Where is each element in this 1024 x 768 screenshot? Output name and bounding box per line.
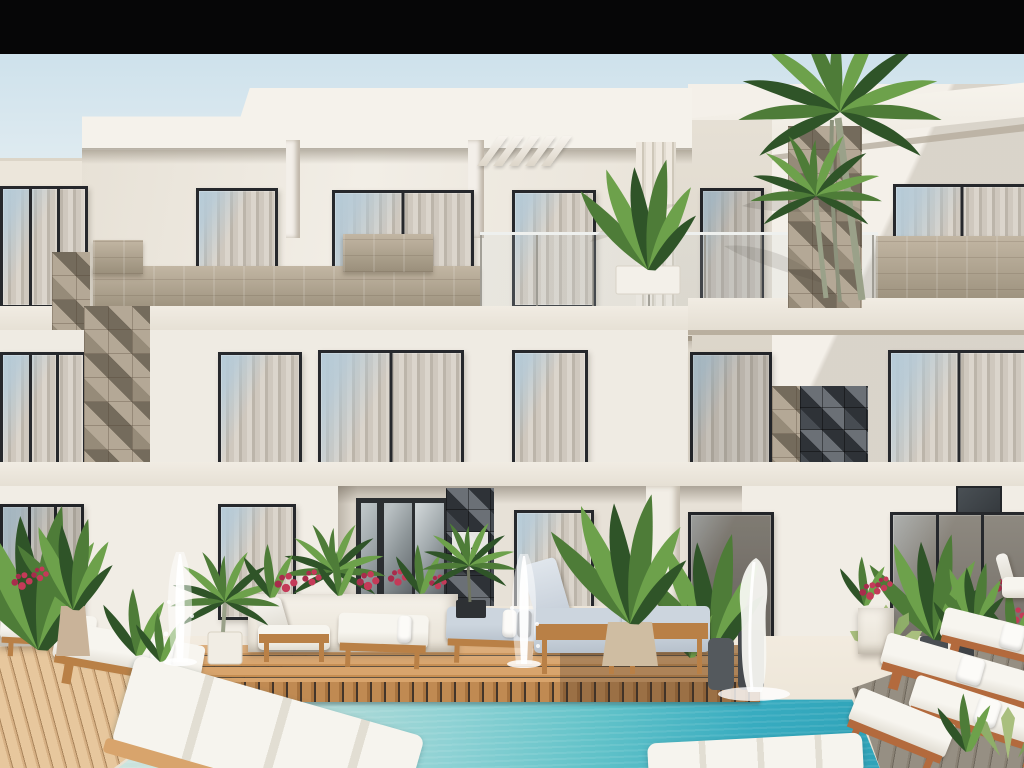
main-roof-under-shadow [82,148,692,164]
window [690,352,772,468]
stone-column-top-right [788,126,862,308]
balcony-pillar-left [286,140,300,238]
window [888,350,1024,472]
parapet-stone-block [93,240,143,274]
window [218,352,302,472]
lounge-chair [534,556,622,674]
lounge-chair [337,610,429,669]
architectural-rendering-scene: 01 [0,0,1024,768]
lounge-chair [622,552,710,674]
lounge-chair [445,604,543,665]
unit-sign-label: 01 [460,543,480,559]
window [0,352,86,474]
lounge-chair [1002,552,1024,608]
balcony-stone-parapet-right [876,236,1024,306]
window [318,350,464,470]
letterbox-top-bar [0,0,1024,54]
unit-sign: 01 [452,532,488,570]
lounge-chair [258,596,330,662]
window [512,350,588,470]
parapet-stone-block [343,234,433,272]
